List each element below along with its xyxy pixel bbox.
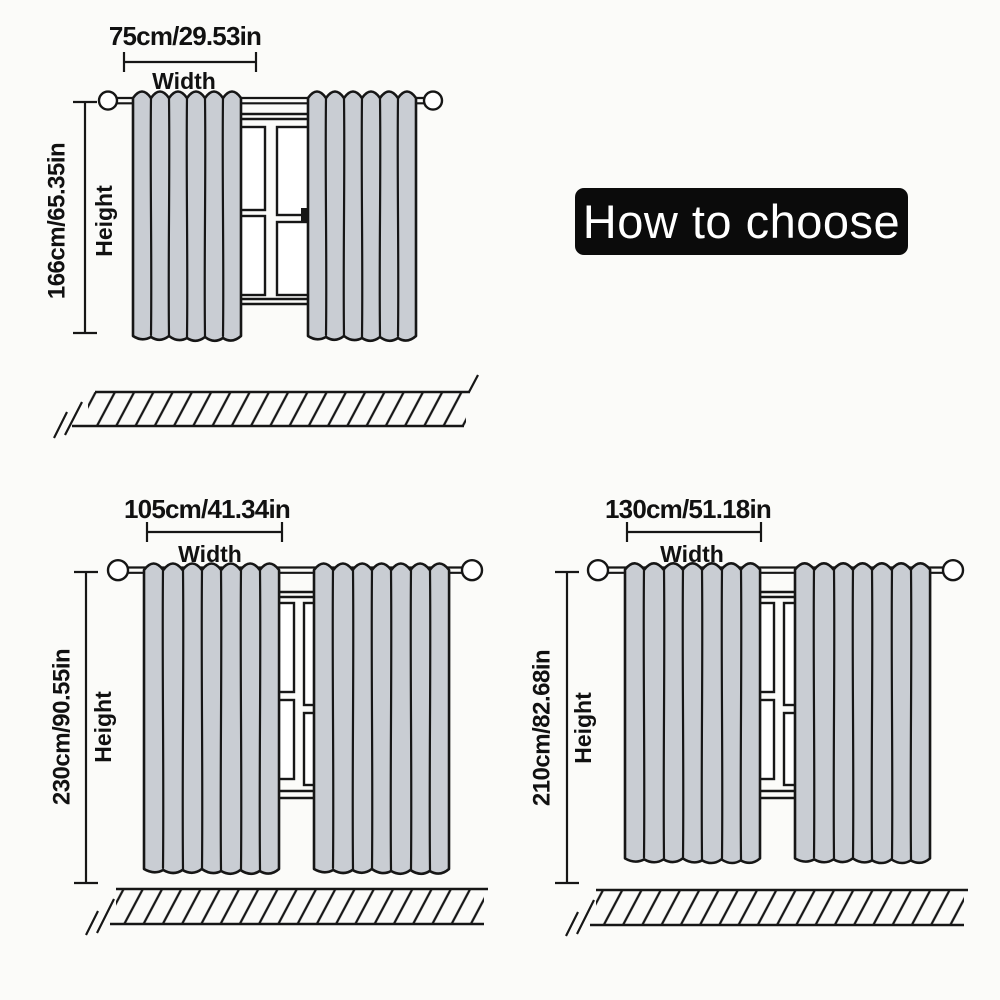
floor-hatch: [86, 889, 488, 935]
rod-finial-right: [462, 560, 482, 580]
diagram-floor-length-210: 130cm/51.18in Width 210cm/82.68in Height: [520, 485, 990, 950]
floor-hatch: [566, 890, 968, 936]
curtain-panel-left: [144, 564, 279, 874]
curtain-panel-left: [133, 92, 241, 341]
how-to-choose-banner: How to choose: [575, 188, 908, 255]
height-size-label: 210cm/82.68in: [529, 650, 556, 806]
curtain-panel-right: [314, 564, 449, 874]
curtain-panel-right: [795, 563, 930, 863]
rod-finial-left: [99, 92, 117, 110]
height-label: Height: [570, 692, 596, 764]
floor-hatch: [54, 375, 478, 438]
rod-finial-left: [108, 560, 128, 580]
width-size-label: 75cm/29.53in: [109, 21, 261, 51]
curtain-panel-left: [625, 563, 760, 863]
width-size-label: 130cm/51.18in: [605, 494, 771, 524]
rod-finial-right: [424, 92, 442, 110]
rod-finial-right: [943, 560, 963, 580]
width-label: Width: [660, 541, 724, 567]
height-label: Height: [91, 185, 117, 257]
height-label: Height: [90, 691, 116, 763]
width-dimension-bracket: [627, 522, 761, 542]
width-size-label: 105cm/41.34in: [124, 494, 290, 524]
width-label: Width: [178, 541, 242, 567]
diagram-floor-length-230: 105cm/41.34in Width 230cm/90.55in Height: [40, 485, 510, 950]
width-label: Width: [152, 68, 216, 94]
width-dimension-bracket: [147, 522, 282, 542]
curtain-panel-right: [308, 92, 416, 341]
rod-finial-left: [588, 560, 608, 580]
banner-label: How to choose: [583, 194, 900, 249]
height-size-label: 230cm/90.55in: [49, 649, 76, 805]
curtain-size-infographic: 75cm/29.53in Width 166cm/65.35in Height …: [0, 0, 1000, 1000]
diagram-sill-length: 75cm/29.53in Width 166cm/65.35in Height: [40, 8, 500, 440]
height-size-label: 166cm/65.35in: [44, 143, 71, 299]
